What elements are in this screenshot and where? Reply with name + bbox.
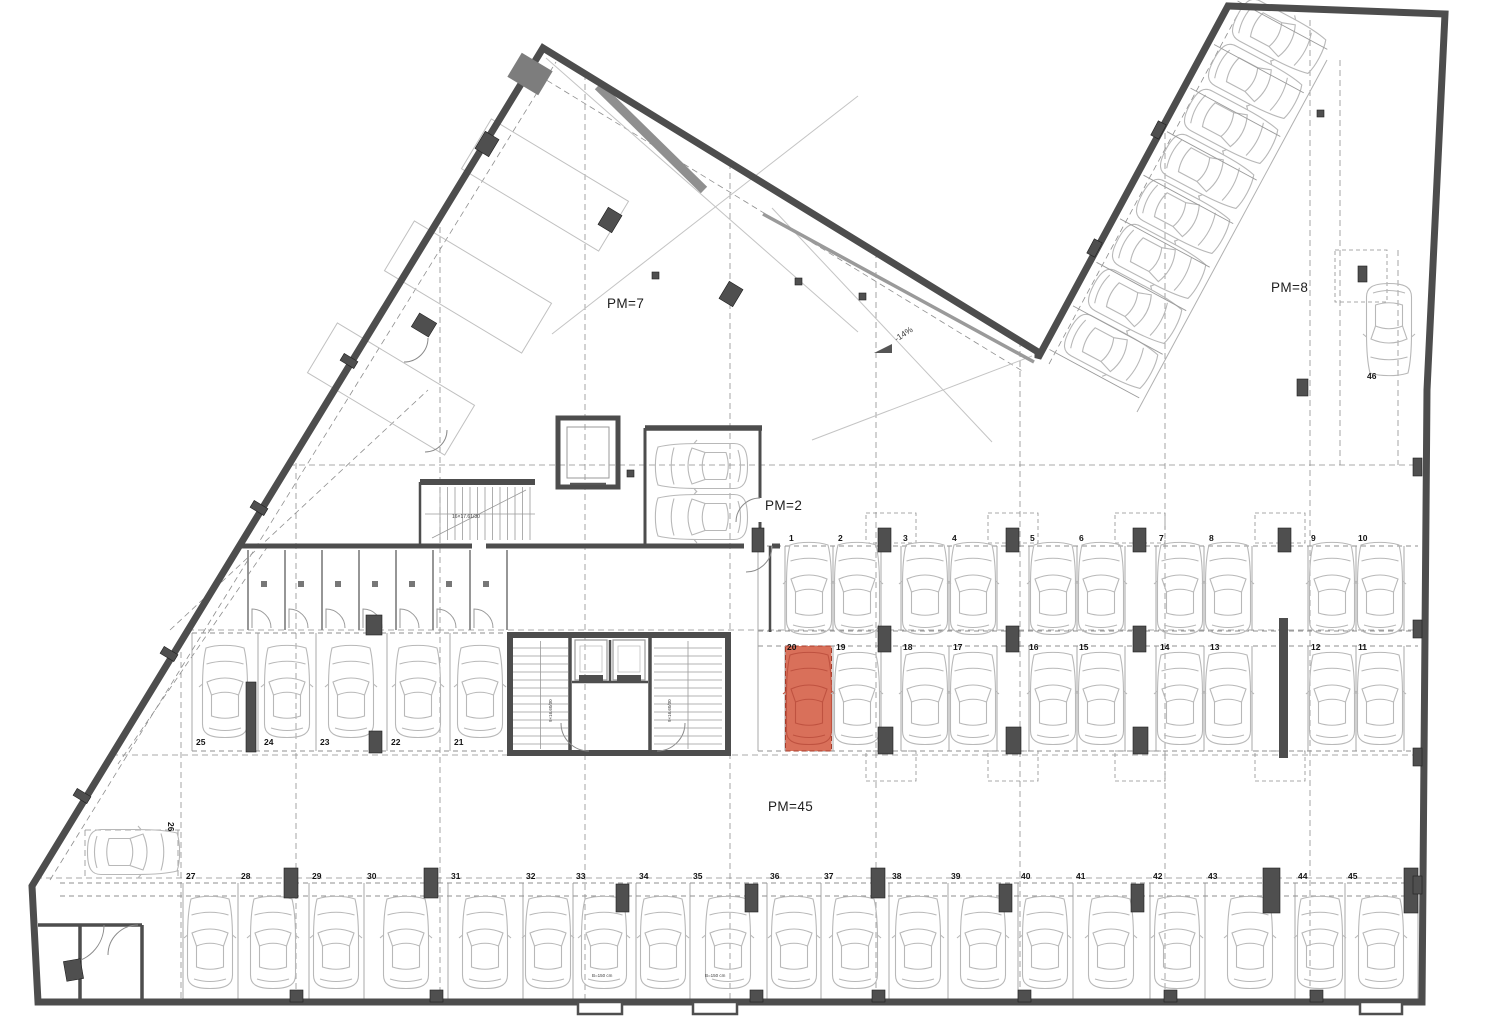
- columns-layer: [63, 110, 1422, 1002]
- floor-plan-canvas: [0, 0, 1500, 1016]
- room-walls-sw: [38, 925, 142, 1000]
- future-bay-outline: [384, 221, 551, 353]
- parking-floor-plan: PM=7 PM=8 PM=2 PM=45 1234567891020191817…: [0, 0, 1500, 1016]
- column-bays: [866, 250, 1387, 781]
- slope-symbol: [874, 344, 892, 353]
- cars-layer: [88, 0, 1416, 988]
- diagonal-strip-bays: [248, 1, 1327, 630]
- main-ramp: [763, 214, 1034, 362]
- core-wall: [510, 635, 728, 753]
